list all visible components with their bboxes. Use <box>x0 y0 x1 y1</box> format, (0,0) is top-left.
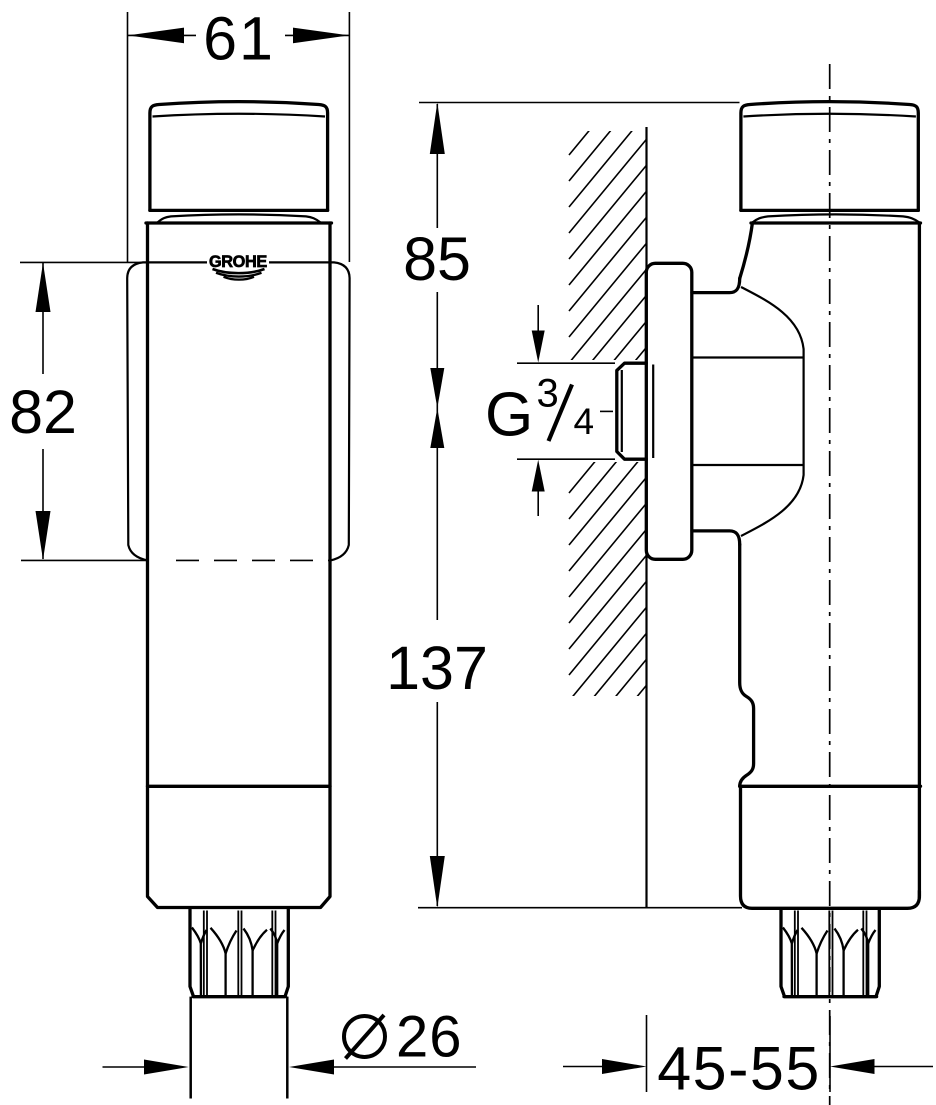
svg-text:GROHE: GROHE <box>209 253 267 271</box>
svg-text:26: 26 <box>396 1005 463 1070</box>
svg-text:137: 137 <box>386 634 488 702</box>
svg-text:82: 82 <box>9 378 77 446</box>
svg-text:85: 85 <box>403 225 471 293</box>
svg-text:3: 3 <box>537 371 559 415</box>
svg-text:61: 61 <box>203 4 275 72</box>
svg-text:45-55: 45-55 <box>657 1035 821 1103</box>
svg-text:G: G <box>485 381 533 450</box>
svg-text:4: 4 <box>574 401 595 442</box>
